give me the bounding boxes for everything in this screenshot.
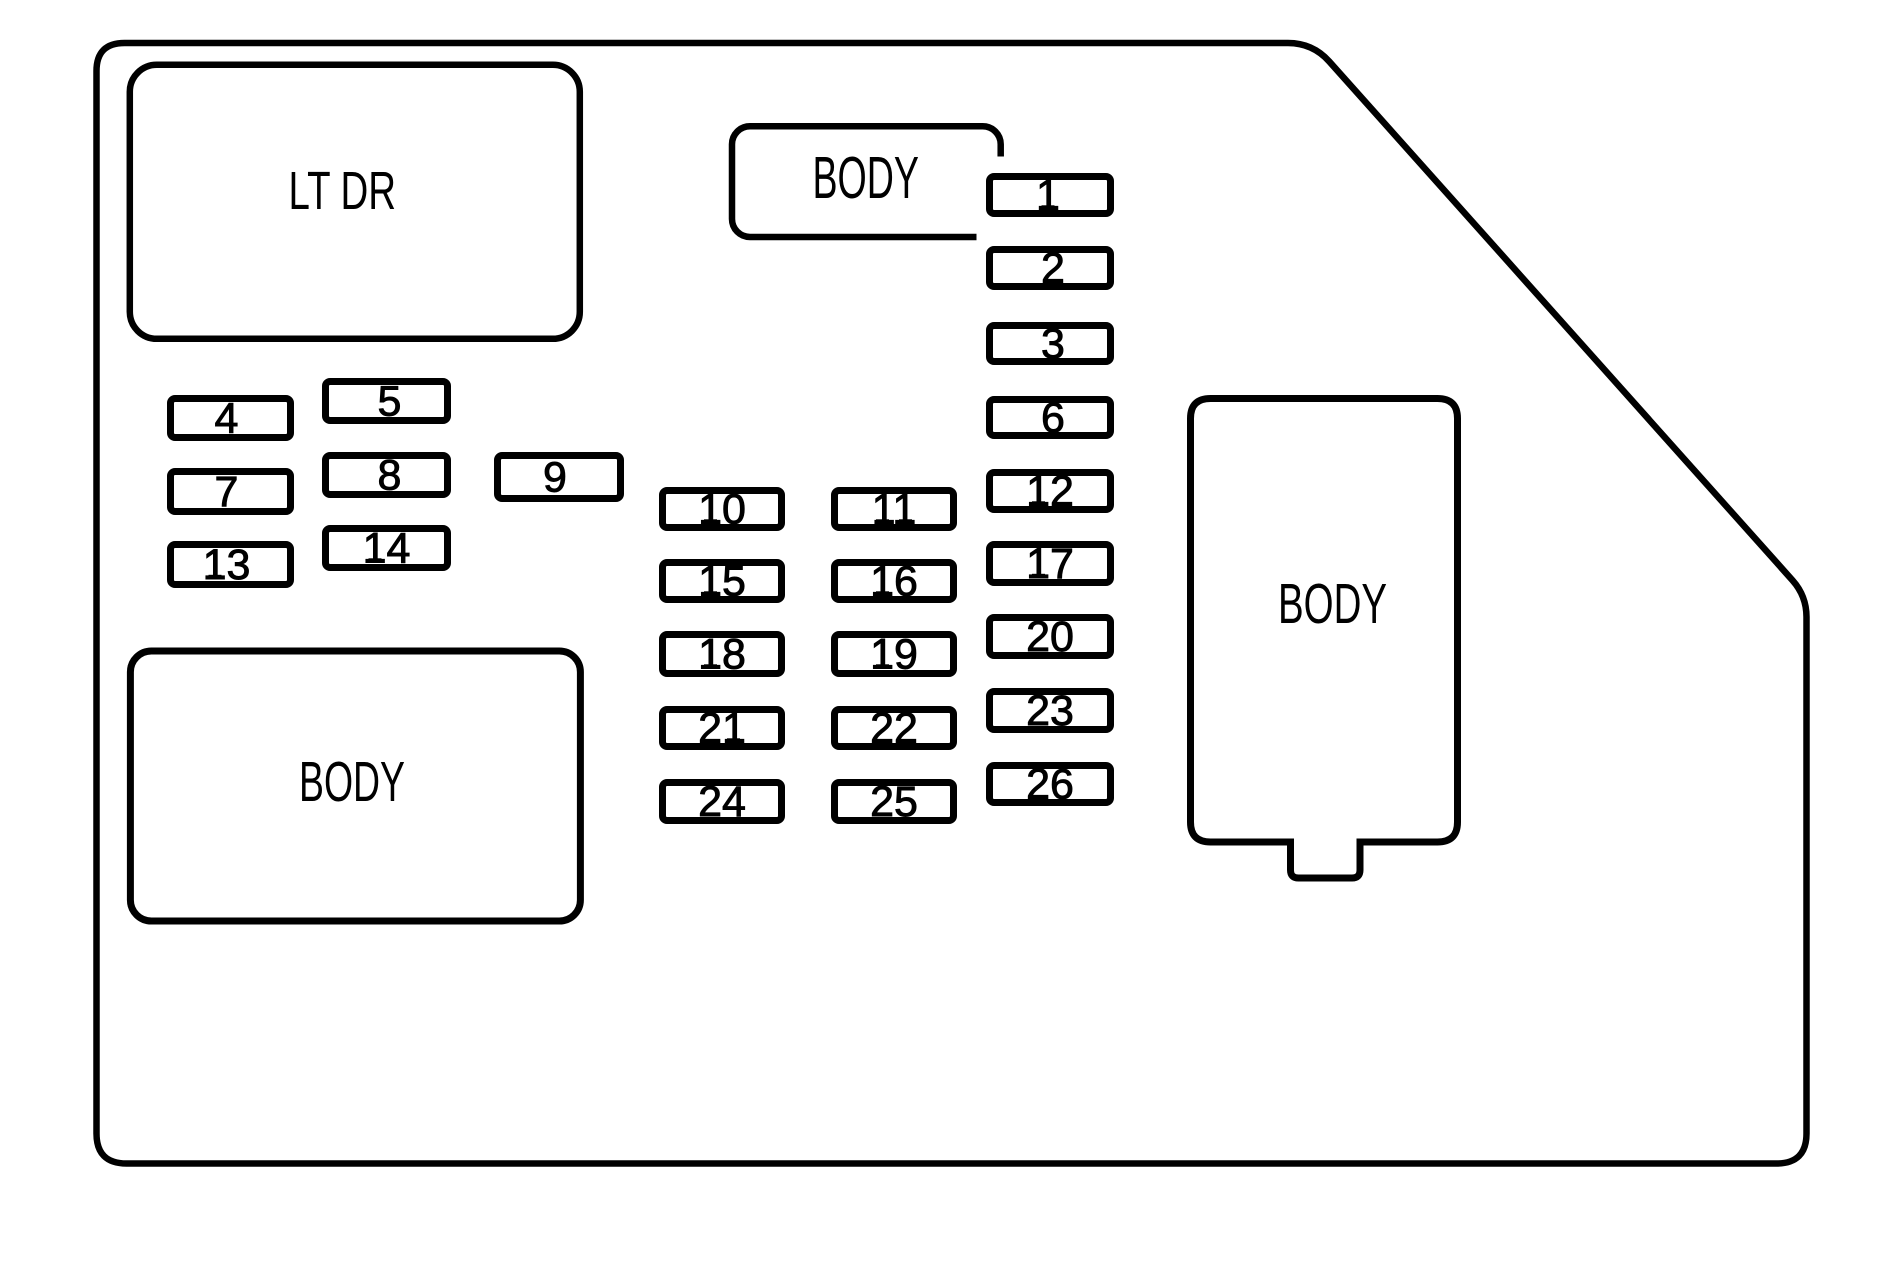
svg-text:24: 24 xyxy=(698,778,746,826)
svg-text:6: 6 xyxy=(1041,394,1065,442)
svg-text:25: 25 xyxy=(870,778,918,826)
svg-text:8: 8 xyxy=(378,452,402,500)
svg-text:19: 19 xyxy=(870,631,918,679)
svg-text:1: 1 xyxy=(1036,172,1060,220)
svg-text:15: 15 xyxy=(698,558,746,606)
svg-text:13: 13 xyxy=(203,541,251,589)
svg-text:LT DR: LT DR xyxy=(289,161,397,221)
svg-text:2: 2 xyxy=(1041,245,1065,293)
svg-text:17: 17 xyxy=(1026,540,1074,588)
svg-text:5: 5 xyxy=(378,378,402,426)
svg-text:20: 20 xyxy=(1026,613,1074,661)
svg-text:11: 11 xyxy=(872,486,917,534)
svg-text:26: 26 xyxy=(1026,761,1074,809)
svg-text:BODY: BODY xyxy=(1278,572,1387,635)
svg-text:7: 7 xyxy=(215,468,239,516)
svg-text:18: 18 xyxy=(698,631,746,679)
svg-text:22: 22 xyxy=(870,705,918,753)
svg-text:4: 4 xyxy=(215,395,239,443)
svg-text:23: 23 xyxy=(1026,687,1074,735)
svg-text:10: 10 xyxy=(698,486,746,534)
svg-text:12: 12 xyxy=(1026,468,1074,516)
svg-text:21: 21 xyxy=(698,705,746,753)
svg-text:BODY: BODY xyxy=(299,750,405,814)
svg-text:9: 9 xyxy=(543,454,567,502)
svg-text:BODY: BODY xyxy=(812,145,919,211)
svg-text:3: 3 xyxy=(1041,320,1065,368)
svg-text:16: 16 xyxy=(870,558,918,606)
svg-text:14: 14 xyxy=(363,525,411,573)
